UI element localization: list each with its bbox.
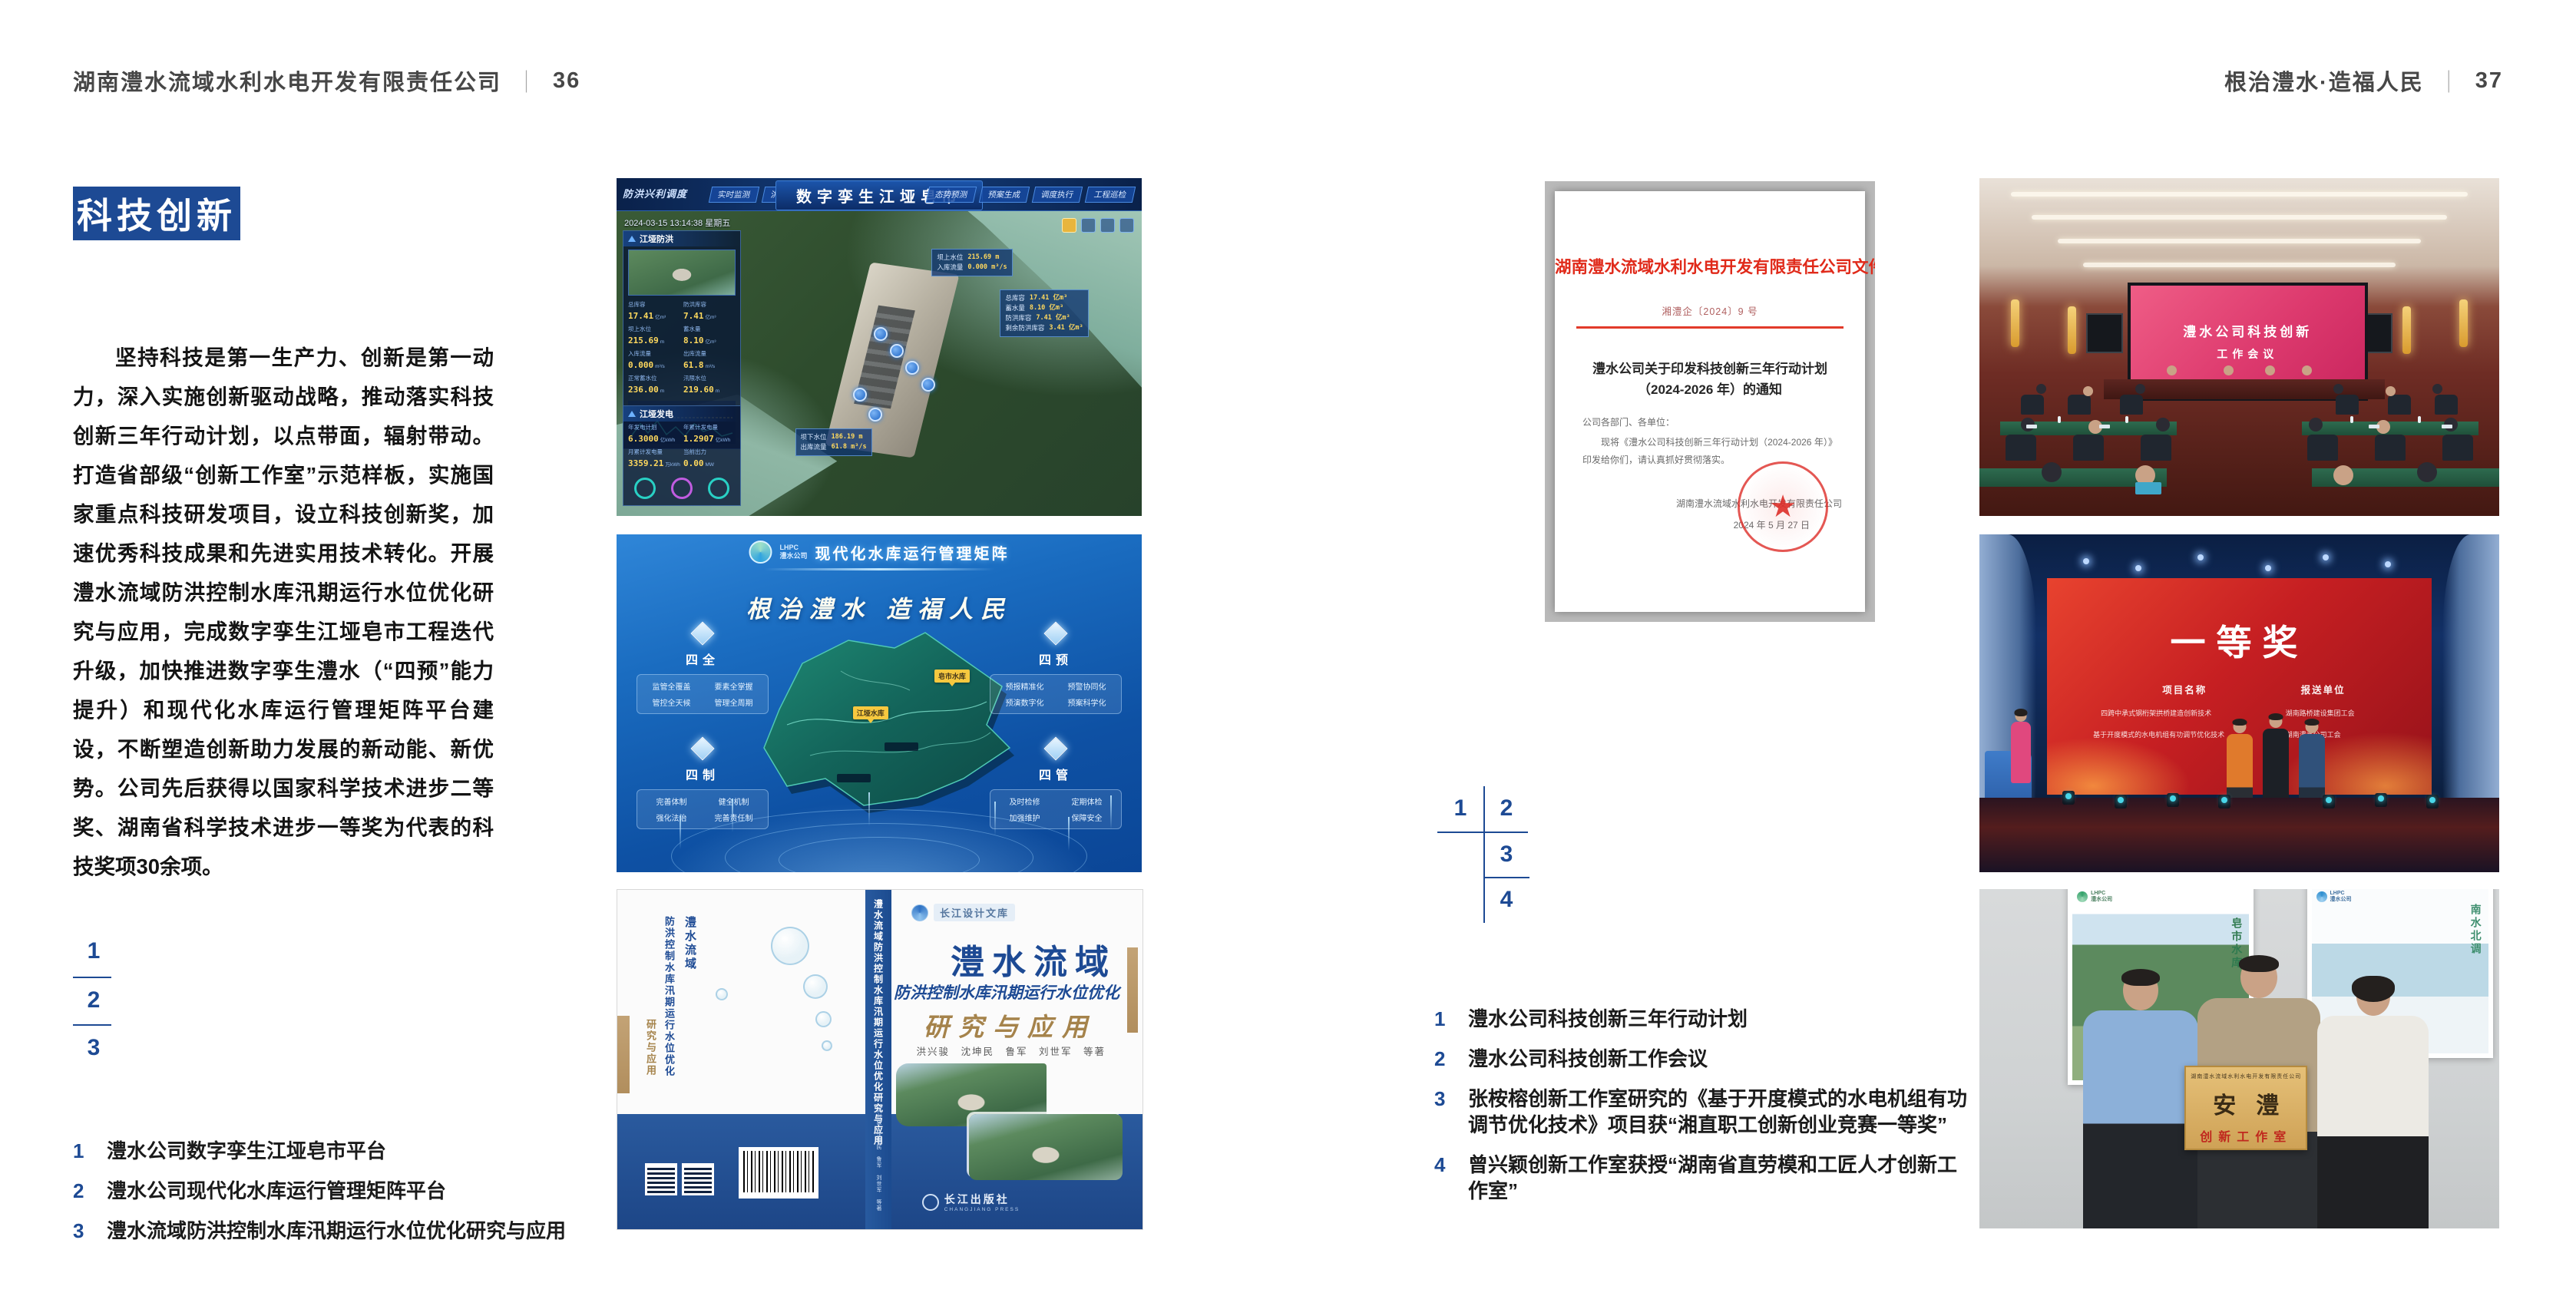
caption-item: 1 澧水公司科技创新三年行动计划 xyxy=(1434,1006,1972,1032)
page-number-right: 37 xyxy=(2475,68,2503,94)
wall-tv xyxy=(2086,313,2123,353)
host-silhouette xyxy=(2011,710,2031,783)
matrix-header: LHPC 澧水公司 现代化水库运行管理矩阵 xyxy=(749,541,1009,564)
matrix-title: 现代化水库运行管理矩阵 xyxy=(815,541,1010,564)
figure-award-photo: 一等奖 项目名称 报送单位 四跨中承式钢桁架拱桥建造创新技术 湖南路桥建设集团工… xyxy=(1979,534,2499,872)
turbine-gauges xyxy=(623,474,740,505)
logo-text-cn: 澧水公司 xyxy=(779,552,807,560)
document-number: 湘澧企〔2024〕9 号 xyxy=(1555,303,1865,318)
spotlight-fixture xyxy=(2426,795,2439,808)
wall-lamp xyxy=(2011,299,2019,347)
stage-light xyxy=(2197,554,2204,560)
dam-photo-band xyxy=(969,1114,1123,1180)
water-bottle xyxy=(2058,416,2061,423)
poster-right-title: 南水北调 xyxy=(2469,904,2484,956)
paper xyxy=(2369,425,2379,428)
caption-number: 4 xyxy=(1434,1152,1468,1204)
column-org: 报送单位 xyxy=(2301,682,2346,696)
figure-ref-1: 1 xyxy=(75,938,112,964)
back-gold-tab xyxy=(617,1016,630,1094)
caption-number: 2 xyxy=(73,1178,107,1204)
lhpc-logo-icon xyxy=(2316,891,2327,902)
spotlight-fixture xyxy=(2115,795,2127,808)
caption-text: 澧水公司现代化水库运行管理矩阵平台 xyxy=(107,1178,610,1204)
gate-marker xyxy=(921,378,935,392)
plaque-subtitle: 创新工作室 xyxy=(2186,1126,2306,1145)
chair xyxy=(2021,395,2044,415)
gate-marker xyxy=(905,361,919,375)
paper xyxy=(2026,425,2037,428)
lhpc-logo-icon xyxy=(749,541,772,564)
caption-text: 澧水公司科技创新工作会议 xyxy=(1468,1046,1972,1072)
ceiling-light xyxy=(2032,215,2448,220)
wall-lamp xyxy=(2402,306,2411,354)
book-title-2: 防洪控制水库汛期运行水位优化 xyxy=(894,980,1119,1003)
power-panel: 江垭发电 年发电计划6.3000亿kWh 年累计发电量1.2907亿kWh 月累… xyxy=(623,405,741,506)
right-caption-list: 1 澧水公司科技创新三年行动计划 2 澧水公司科技创新工作会议 3 张桉榕创新工… xyxy=(1434,1006,1972,1218)
legend-divider xyxy=(1437,832,1528,833)
stage-light xyxy=(2135,565,2141,571)
legend-divider xyxy=(73,977,111,978)
panel-icon xyxy=(628,411,636,417)
page-spread: 湖南澧水流域水利水电开发有限责任公司 ｜ 36 根治澧水·造福人民 ｜ 37 科… xyxy=(0,0,2576,1306)
panel-sizhi: 四制 完善体制 健全机制 强化法治 完善责任制 xyxy=(637,740,769,829)
series-logo: 长江设计文库 xyxy=(911,904,1015,921)
cube-icon xyxy=(1043,736,1067,760)
publisher-name: 长江出版社 xyxy=(944,1192,1020,1207)
chair xyxy=(2141,435,2171,461)
tab-project-inspect: 工程巡检 xyxy=(1085,187,1136,203)
stage-light xyxy=(2385,561,2391,567)
bubble-decoration xyxy=(815,1011,832,1027)
gauge-icon xyxy=(708,478,729,499)
gauge-icon xyxy=(671,478,693,499)
figure-book-cover: 澧水流域 防洪控制水库汛期运行水位优化 研究与应用 澧水流域防洪控制水库汛期运行… xyxy=(617,889,1143,1230)
figure-matrix-platform: LHPC 澧水公司 现代化水库运行管理矩阵 根治澧水 造福人民 皂市水库 江垭水… xyxy=(617,534,1142,872)
poster-logo: LHPC澧水公司 xyxy=(2077,891,2112,903)
back-title-3: 研究与应用 xyxy=(643,1019,658,1076)
figure-ref-2: 2 xyxy=(75,987,112,1013)
chair xyxy=(2006,435,2036,461)
publisher-name-en: CHANGJIANG PRESS xyxy=(944,1207,1020,1212)
legend-divider xyxy=(73,1024,111,1026)
book-authors: 洪兴骏 沈坤民 鲁军 刘世军 等著 xyxy=(916,1043,1106,1058)
header-separator: ｜ xyxy=(515,64,539,97)
publisher-logo-icon xyxy=(922,1194,939,1211)
audience-head xyxy=(2042,462,2062,482)
figure-meeting-photo: 澧水公司科技创新 工作会议 xyxy=(1979,178,2499,516)
caption-item: 2 澧水公司科技创新工作会议 xyxy=(1434,1046,1972,1072)
chair xyxy=(2068,395,2091,415)
stage-light xyxy=(2323,554,2329,560)
ceiling-light xyxy=(2058,239,2422,243)
reservoir-tooltip: 总库容17.41 亿m³ 蓄水量8.10 亿m³ 防洪库容7.41 亿m³ 剩余… xyxy=(1000,289,1088,337)
caption-number: 3 xyxy=(73,1218,107,1244)
chair xyxy=(2120,395,2143,415)
logo-text-en: LHPC xyxy=(779,544,807,552)
paper xyxy=(2442,425,2452,428)
tab-situation-forecast: 态势预测 xyxy=(926,187,977,203)
figure-group-photo: LHPC澧水公司 皂市水库 LHPC澧水公司 南水北调 xyxy=(1979,889,2499,1228)
audience-head xyxy=(2083,386,2093,396)
power-panel-title: 江垭发电 xyxy=(640,408,673,420)
figure-official-document: 湖南澧水流域水利水电开发有限责任公司文件 湘澧企〔2024〕9 号 澧水公司关于… xyxy=(1545,181,1875,622)
figure-ref-3: 3 xyxy=(75,1035,112,1061)
qr-code xyxy=(645,1163,677,1195)
front-gold-tab xyxy=(1127,947,1138,1033)
caption-text: 澧水公司数字孪生江垭皂市平台 xyxy=(107,1138,610,1164)
speaker-head xyxy=(2167,365,2177,375)
map-marker-zaoshi: 皂市水库 xyxy=(934,670,970,683)
caption-number: 1 xyxy=(1434,1006,1468,1032)
award-row-org: 湖南路桥建设集团工会 xyxy=(2286,708,2355,718)
stage-light xyxy=(2265,565,2271,571)
flood-stats: 总库容17.41亿m³ 防洪库容7.41亿m³ 坝上水位215.69m 蓄水量8… xyxy=(623,299,740,401)
platform-datetime: 2024-03-15 13:14:38 星期五 xyxy=(624,217,730,229)
caption-item: 2 澧水公司现代化水库运行管理矩阵平台 xyxy=(73,1178,610,1204)
seal-star-icon: ★ xyxy=(1769,489,1797,524)
lhpc-logo-icon xyxy=(2077,891,2088,902)
award-row-project: 四跨中承式钢桁架拱桥建造创新技术 xyxy=(2101,708,2211,718)
poster-logo: LHPC澧水公司 xyxy=(2316,891,2352,903)
audience-head xyxy=(2417,462,2437,482)
plaque-header: 湖南澧水流域水利水电开发有限责任公司 xyxy=(2186,1073,2306,1080)
gate-marker xyxy=(853,388,867,402)
caption-text: 张桉榕创新工作室研究的《基于开度模式的水电机组有功调节优化技术》项目获“湘直职工… xyxy=(1468,1086,1972,1138)
chair xyxy=(2388,395,2411,415)
gauge-icon xyxy=(634,478,656,499)
map-marker-small xyxy=(837,774,871,782)
book-spine: 澧水流域防洪控制水库汛期运行水位优化研究与应用 洪兴骏 沈坤民 鲁军 刘世军 等… xyxy=(865,890,891,1229)
ceiling-light xyxy=(2011,192,2469,197)
chair xyxy=(2435,395,2458,415)
official-seal: ★ xyxy=(1738,461,1828,552)
document-page: 湖南澧水流域水利水电开发有限责任公司文件 湘澧企〔2024〕9 号 澧水公司关于… xyxy=(1555,191,1865,612)
flood-panel-title: 江垭防洪 xyxy=(640,233,673,245)
ceiling-light xyxy=(2083,263,2395,267)
woman-right-silhouette xyxy=(2317,977,2429,1228)
platform-icon-cluster xyxy=(1062,218,1134,233)
document-title: 澧水公司关于印发科技创新三年行动计划 （2024-2026 年）的通知 xyxy=(1555,359,1865,400)
platform-tabs-right: 态势预测 预案生成 调度执行 工程巡检 xyxy=(928,187,1134,203)
figure-digital-twin-platform: 防洪兴利调度 实时监测 洪水预报 防洪预警 数字孪生江垭皂市 态势预测 预案生成… xyxy=(617,178,1142,516)
bubble-decoration xyxy=(716,988,728,1000)
caption-item: 3 澧水流域防洪控制水库汛期运行水位优化研究与应用 xyxy=(73,1218,610,1244)
company-name: 湖南澧水流域水利水电开发有限责任公司 xyxy=(73,64,501,97)
innovation-studio-plaque: 湖南澧水流域水利水电开发有限责任公司 安澧 创新工作室 xyxy=(2184,1066,2307,1150)
wall-lamp xyxy=(2068,306,2076,354)
caption-number: 1 xyxy=(73,1138,107,1164)
chair xyxy=(2336,395,2359,415)
qr-code xyxy=(682,1163,714,1195)
caption-item: 1 澧水公司数字孪生江垭皂市平台 xyxy=(73,1138,610,1164)
publisher-mark: 长江出版社 CHANGJIANG PRESS xyxy=(922,1192,1020,1212)
spotlight-fixture xyxy=(2167,793,2179,807)
chair xyxy=(2307,435,2338,461)
legend-divider xyxy=(1483,877,1529,878)
caption-text: 曾兴颖创新工作室获授“湖南省直劳模和工匠人才创新工作室” xyxy=(1468,1152,1972,1204)
spotlight-fixture xyxy=(2375,793,2387,807)
document-red-header: 湖南澧水流域水利水电开发有限责任公司文件 xyxy=(1555,254,1865,278)
caption-item: 3 张桉榕创新工作室研究的《基于开度模式的水电机组有功调节优化技术》项目获“湘直… xyxy=(1434,1086,1972,1138)
caption-item: 4 曾兴颖创新工作室获授“湖南省直劳模和工匠人才创新工作室” xyxy=(1434,1152,1972,1204)
screen-title-line1: 澧水公司科技创新 xyxy=(2183,321,2312,340)
series-name: 长江设计文库 xyxy=(934,904,1015,921)
bubble-decoration xyxy=(803,974,828,999)
stage-floor xyxy=(1979,798,2499,872)
caption-number: 2 xyxy=(1434,1046,1468,1072)
intro-paragraph: 坚持科技是第一生产力、创新是第一动力，深入实施创新驱动战略，推动落实科技创新三年… xyxy=(73,338,494,886)
column-project: 项目名称 xyxy=(2162,682,2207,696)
map-marker-small xyxy=(885,742,918,751)
panel-icon xyxy=(628,236,636,242)
legend-divider-vertical xyxy=(1483,786,1485,923)
flood-panel-header: 江垭防洪 xyxy=(623,231,740,246)
audience-head xyxy=(2432,384,2442,394)
upstream-tooltip: 坝上水位215.69 m 入库流量0.000 m³/s xyxy=(931,249,1012,276)
stage-light xyxy=(2083,558,2089,564)
caption-text: 澧水流域防洪控制水库汛期运行水位优化研究与应用 xyxy=(107,1218,610,1244)
paper xyxy=(2099,425,2110,428)
left-caption-list: 1 澧水公司数字孪生江垭皂市平台 2 澧水公司现代化水库运行管理矩阵平台 3 澧… xyxy=(73,1138,610,1258)
cube-icon xyxy=(690,736,714,760)
spotlight-fixture xyxy=(2062,791,2075,805)
slogan-title: 根治澧水·造福人民 xyxy=(2224,64,2424,97)
figure-ref-4: 4 xyxy=(1488,887,1525,913)
screen-title-line2: 工作会议 xyxy=(2217,346,2278,362)
figure-ref-1: 1 xyxy=(1442,795,1479,822)
plaque-title: 安澧 xyxy=(2186,1086,2306,1120)
header-separator: ｜ xyxy=(2438,64,2462,97)
map-marker-jiangya: 江垭水库 xyxy=(853,706,888,719)
award-title: 一等奖 xyxy=(2047,615,2432,666)
panel-siyu: 四预 预报精准化 预警协同化 预演数字化 预案科学化 xyxy=(990,625,1122,714)
audience-head xyxy=(2036,384,2046,394)
chair xyxy=(2375,435,2406,461)
tab-plan-generate: 预案生成 xyxy=(979,187,1030,203)
power-panel-header: 江垭发电 xyxy=(623,406,740,422)
gate-marker xyxy=(874,327,888,341)
back-title-1: 澧水流域 xyxy=(682,916,698,971)
water-bottle xyxy=(2125,416,2128,423)
caption-number: 3 xyxy=(1434,1086,1468,1138)
panel-siguan: 四管 及时检修 定期体检 加强维护 保障安全 xyxy=(990,740,1122,829)
layers-icon xyxy=(1081,218,1096,233)
tab-realtime-monitor: 实时监测 xyxy=(709,187,759,203)
spotlight-fixture xyxy=(2323,795,2335,808)
chair xyxy=(2442,435,2473,461)
platform-corner-label: 防洪兴利调度 xyxy=(623,186,687,200)
cube-icon xyxy=(1043,621,1067,645)
spotlight-fixture xyxy=(2218,795,2230,808)
book-title-3: 研究与应用 xyxy=(924,1007,1096,1043)
bubble-decoration xyxy=(771,927,809,965)
document-red-line xyxy=(1576,326,1844,329)
settings-icon xyxy=(1119,218,1134,233)
page-number-left: 36 xyxy=(553,68,580,94)
title-underline xyxy=(764,568,994,570)
tab-dispatch-execute: 调度执行 xyxy=(1032,187,1083,203)
gate-marker xyxy=(890,344,904,358)
back-title-2: 防洪控制水库汛期运行水位优化 xyxy=(662,916,676,1093)
caption-text: 澧水公司科技创新三年行动计划 xyxy=(1468,1006,1972,1032)
spine-authors: 洪兴骏 沈坤民 鲁军 刘世军 等著 xyxy=(875,1107,882,1212)
dam-thumbnail xyxy=(628,250,736,296)
changjiang-design-logo-icon xyxy=(911,904,928,921)
chair xyxy=(2073,435,2104,461)
award-row-project: 基于开度模式的水电机组有功调节优化技术 xyxy=(2093,729,2224,739)
page-header-left: 湖南澧水流域水利水电开发有限责任公司 ｜ 36 xyxy=(73,64,580,97)
figure-ref-3: 3 xyxy=(1488,841,1525,868)
locate-icon xyxy=(1100,218,1115,233)
downstream-tooltip: 坝下水位186.19 m 出库流量61.8 m³/s xyxy=(795,428,872,456)
power-stats: 年发电计划6.3000亿kWh 年累计发电量1.2907亿kWh 月累计发电量3… xyxy=(623,422,740,474)
panel-siquan: 四全 监管全覆盖 要素全掌握 管控全天候 管理全周期 xyxy=(637,625,769,714)
cube-icon xyxy=(690,621,714,645)
audience-head xyxy=(2386,386,2396,396)
section-badge: 科技创新 xyxy=(73,187,240,240)
platform-topbar: 防洪兴利调度 实时监测 洪水预报 防洪预警 数字孪生江垭皂市 态势预测 预案生成… xyxy=(617,178,1142,211)
man-left-silhouette xyxy=(2083,970,2198,1228)
page-header-right: 根治澧水·造福人民 ｜ 37 xyxy=(2224,64,2503,97)
figure-ref-2: 2 xyxy=(1488,795,1525,822)
tissue-box xyxy=(2135,482,2161,494)
document-salutation: 公司各部门、各单位： xyxy=(1582,415,1675,428)
bubble-decoration xyxy=(822,1040,832,1051)
speaker-head xyxy=(2302,365,2312,375)
user-icon xyxy=(1062,218,1076,233)
barcode xyxy=(739,1147,818,1199)
book-title-1: 澧水流域 xyxy=(951,934,1116,984)
wall-lamp xyxy=(2459,299,2468,347)
